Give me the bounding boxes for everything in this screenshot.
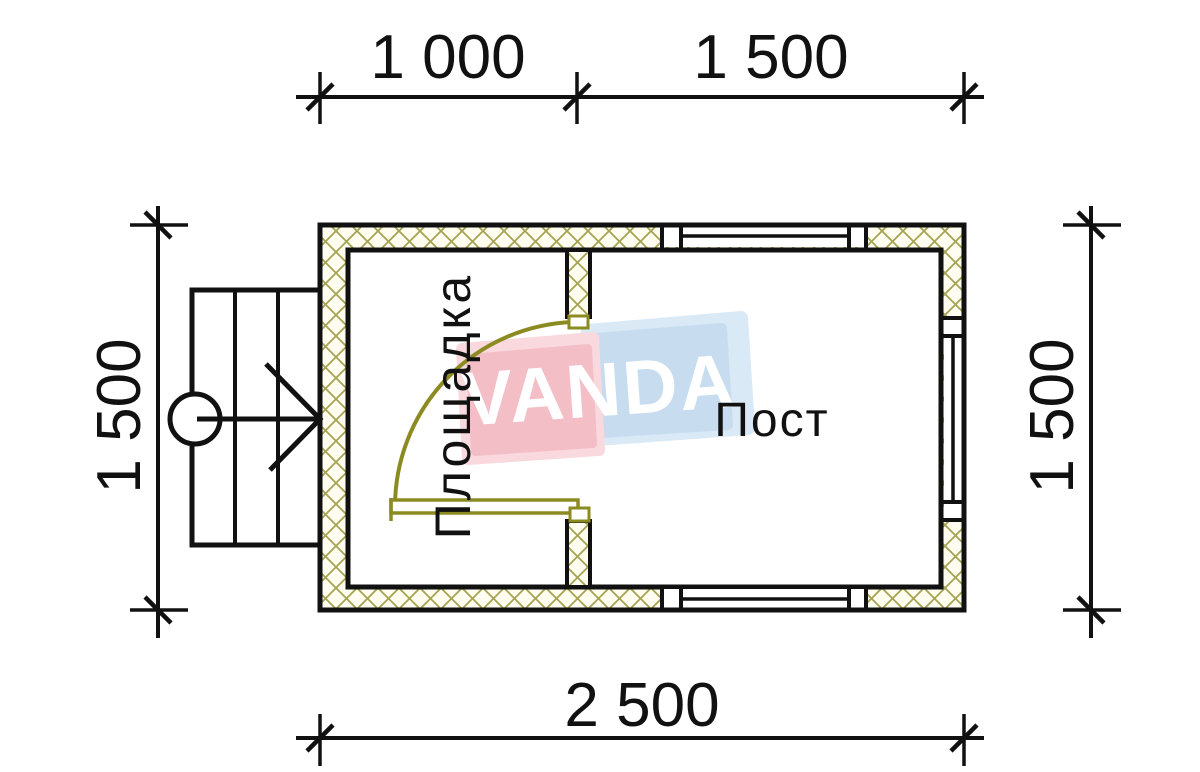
dimension-bottom: 2 500 [296,671,984,766]
dimension-right-value: 1 500 [1018,338,1087,493]
floor-plan-drawing: VANDA [0,0,1200,772]
partition-top-stub [567,250,590,317]
window-bottom [656,587,872,614]
dimension-top-left-value: 1 000 [370,23,525,92]
dimension-right: 1 500 [1018,206,1121,638]
room-label-left: Площадка [425,273,481,539]
room-label-right: Пост [714,394,829,447]
dimension-bottom-value: 2 500 [564,671,719,740]
dimension-top: 1 000 1 500 [296,23,984,124]
door-jamb-hinge [570,508,589,521]
door-jamb-top [569,316,588,328]
window-top [656,221,872,249]
window-right [941,312,967,526]
dimension-top-right-value: 1 500 [693,23,848,92]
partition-bottom-stub [567,521,590,587]
floor-plan-page: VANDA [0,0,1200,772]
door-leaf [391,500,578,513]
dimension-left-value: 1 500 [85,338,154,493]
